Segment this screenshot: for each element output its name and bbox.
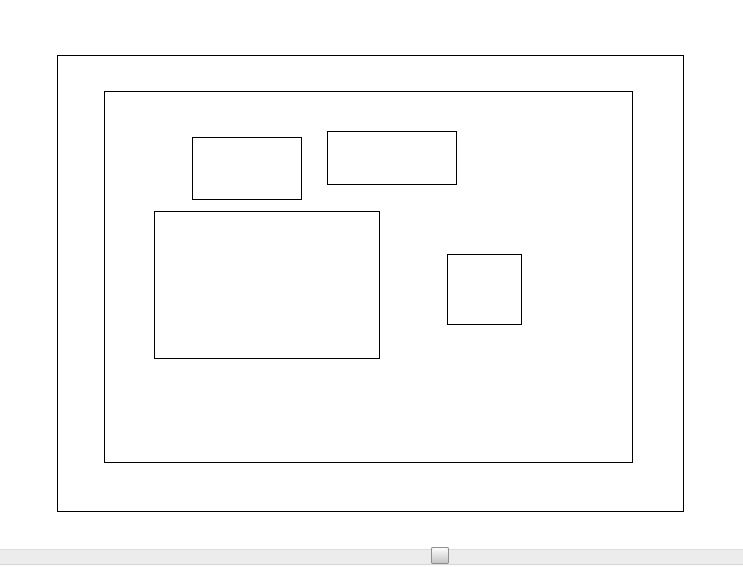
- small-square-right[interactable]: [447, 254, 522, 325]
- small-rect-top-left[interactable]: [192, 137, 302, 200]
- large-rect-middle[interactable]: [154, 211, 380, 359]
- horizontal-scrollbar-track[interactable]: [0, 549, 743, 565]
- horizontal-scrollbar-thumb[interactable]: [431, 547, 449, 564]
- small-rect-top-right[interactable]: [327, 131, 457, 185]
- app-viewport: [0, 0, 743, 567]
- drawing-canvas[interactable]: [0, 0, 743, 549]
